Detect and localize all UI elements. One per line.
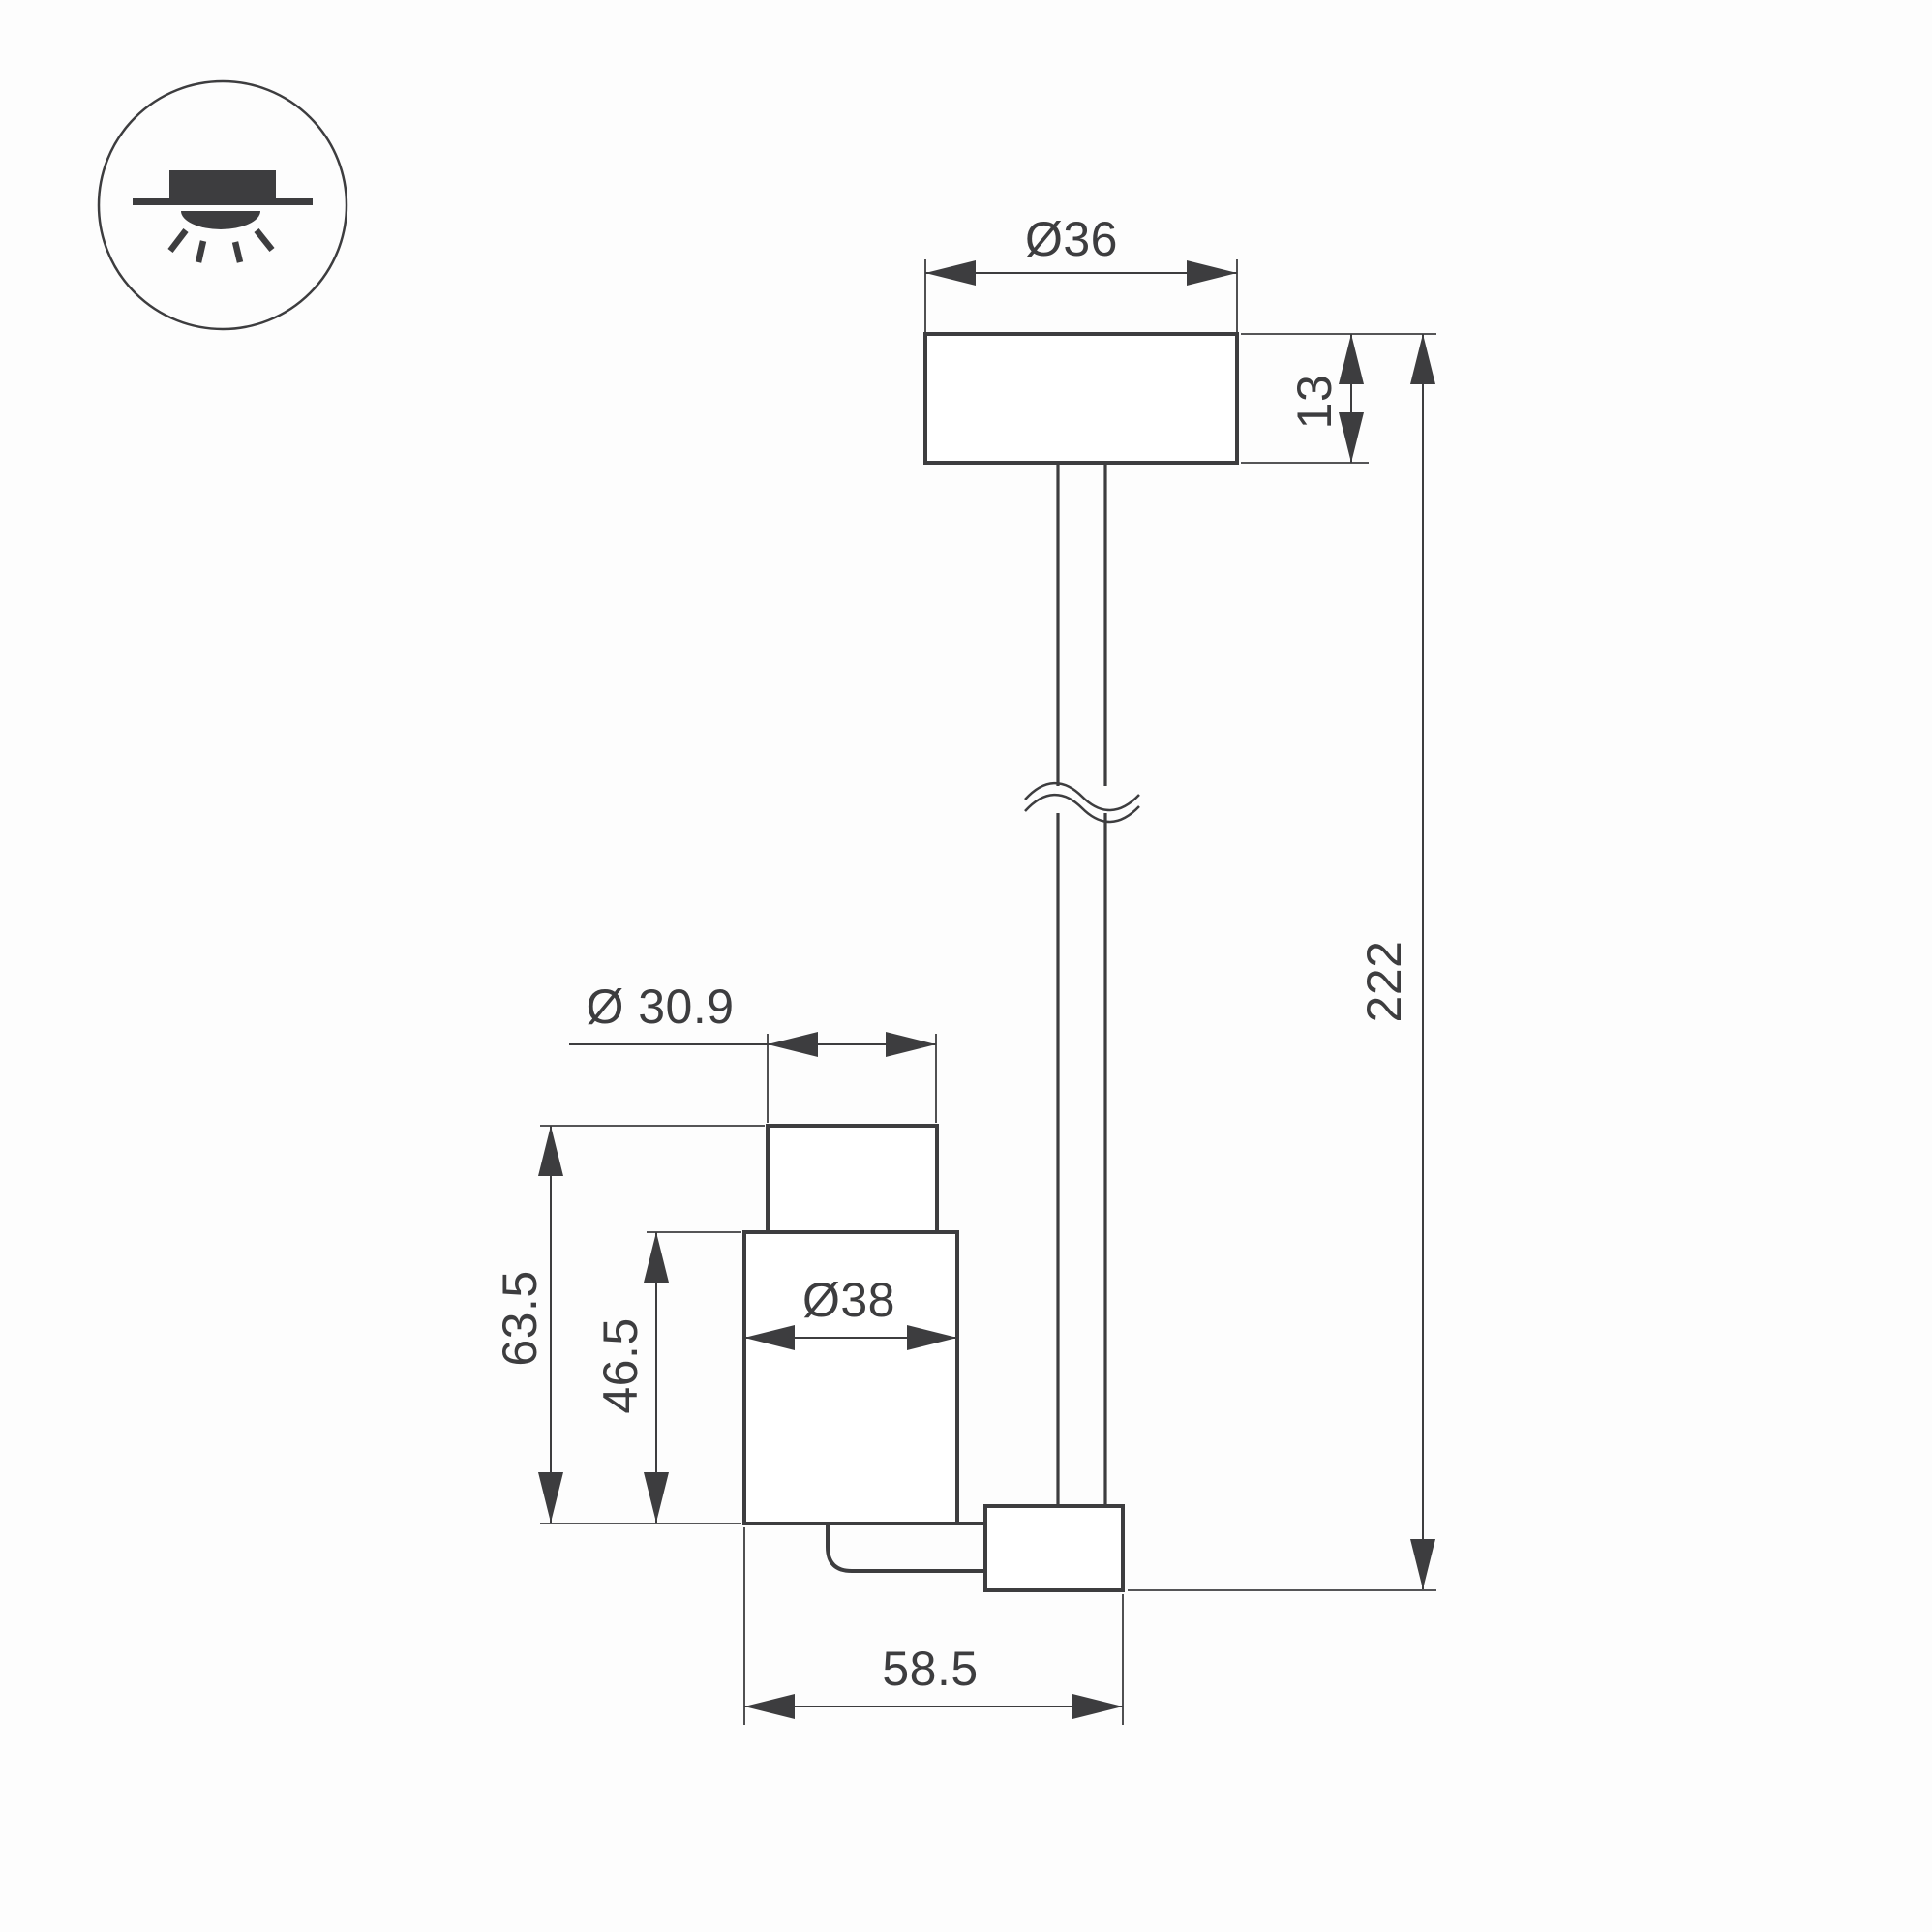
dim-canopy-height: 13 (1241, 334, 1436, 463)
arrow-down-icon (1339, 412, 1364, 463)
arrow-up-icon (1410, 334, 1435, 384)
dim-head-body-height: 46.5 (593, 1232, 741, 1523)
icon-light-ray (198, 241, 203, 262)
arrow-right-icon (1072, 1694, 1123, 1719)
arrow-left-icon (768, 1032, 818, 1057)
arrow-left-icon (925, 260, 976, 286)
arrow-up-icon (1339, 334, 1364, 384)
arrow-right-icon (886, 1032, 936, 1057)
dim-canopy-diameter-label: Ø36 (1025, 212, 1118, 266)
technical-dimension-drawing: Ø36 13 222 Ø 30.9 Ø38 (0, 0, 1932, 1932)
dim-head-body-height-label: 46.5 (593, 1317, 648, 1413)
dim-head-front-diameter-label: Ø 30.9 (586, 980, 734, 1034)
icon-light-ray (235, 242, 240, 262)
icon-fixture-box (169, 170, 276, 199)
icon-ceiling-line (133, 198, 313, 205)
dim-canopy-height-label: 13 (1287, 375, 1342, 430)
luminaire-outline (744, 334, 1237, 1590)
dim-head-body-diameter-label: Ø38 (802, 1273, 895, 1327)
icon-light-ray (170, 230, 186, 251)
dim-head-overall-height-label: 63.5 (493, 1270, 547, 1366)
arrow-up-icon (538, 1126, 563, 1176)
dim-overall-length-label: 222 (1357, 941, 1411, 1023)
dim-canopy-diameter: Ø36 (925, 212, 1237, 332)
rod-connector-block (985, 1506, 1123, 1590)
dim-head-front-diameter: Ø 30.9 (569, 980, 936, 1123)
arrow-down-icon (644, 1472, 669, 1523)
icon-lamp-dome (181, 211, 260, 229)
dim-head-overall-width-label: 58.5 (882, 1642, 978, 1696)
icon-light-ray (257, 230, 272, 250)
dim-overall-length: 222 (1128, 334, 1436, 1590)
arrow-down-icon (538, 1472, 563, 1523)
elbow-arm (828, 1524, 985, 1571)
arrow-up-icon (644, 1232, 669, 1283)
spot-head-front-cylinder (768, 1126, 937, 1232)
arrow-left-icon (744, 1694, 795, 1719)
surface-ceiling-downlight-icon (99, 81, 347, 329)
ceiling-canopy (925, 334, 1237, 463)
arrow-down-icon (1410, 1539, 1435, 1589)
arrow-right-icon (1187, 260, 1237, 286)
